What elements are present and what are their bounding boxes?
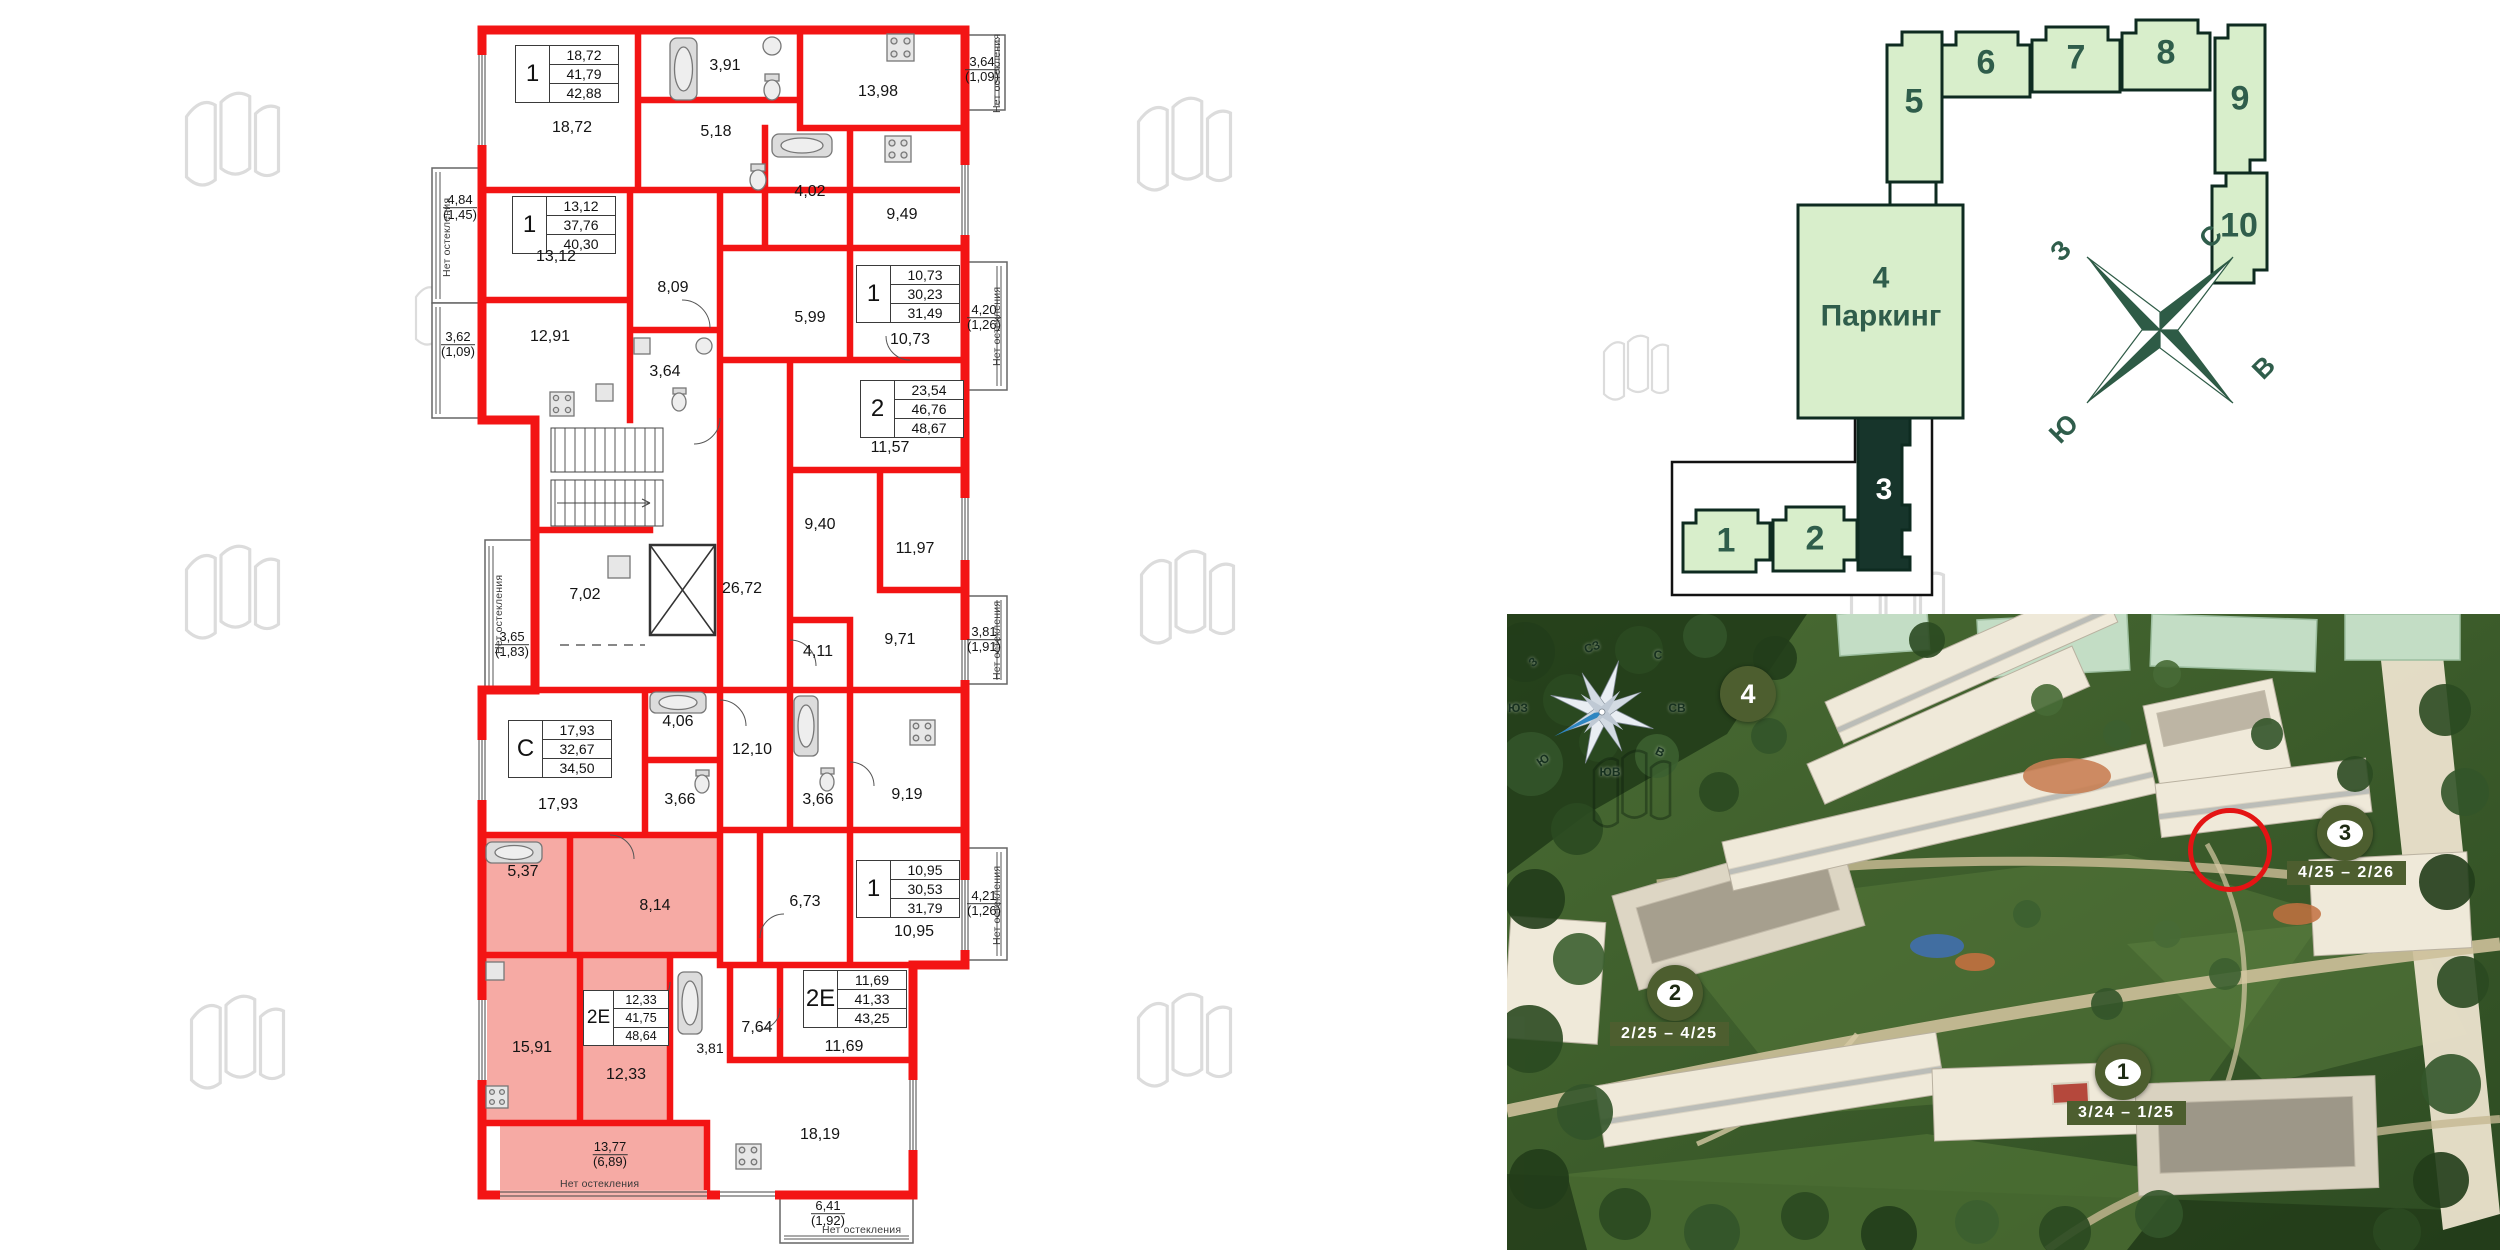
room-area-label: 10,73 bbox=[890, 331, 930, 349]
phase-1-dates: 3/24 – 1/25 bbox=[2067, 1101, 2186, 1125]
apartment-type: 2Е bbox=[804, 971, 838, 1027]
site-building-9[interactable]: 9 bbox=[2231, 80, 2250, 119]
room-area-label: 4,02 bbox=[794, 183, 825, 201]
parking-label[interactable]: Паркинг bbox=[1821, 297, 1942, 336]
toilet-icon bbox=[695, 770, 709, 793]
watermark-logo-icon bbox=[1132, 90, 1237, 205]
watermark-logo-icon bbox=[1132, 986, 1237, 1101]
site-building-6[interactable]: 6 bbox=[1977, 44, 1996, 83]
no-glazing-label: Нет остекления bbox=[822, 1224, 901, 1236]
apartment-card[interactable]: 2 23,5446,7648,67 bbox=[860, 380, 964, 438]
apartment-type: 1 bbox=[516, 46, 550, 102]
parking-number[interactable]: 4 bbox=[1873, 259, 1890, 298]
aerial-compass-n: С bbox=[1654, 648, 1663, 662]
room-area-label: 9,49 bbox=[886, 206, 917, 224]
room-area-label: 7,02 bbox=[569, 586, 600, 604]
site-building-1[interactable]: 1 bbox=[1717, 522, 1736, 561]
balcony-area-label: 3,62(1,09) bbox=[441, 330, 475, 360]
room-area-label: 4,11 bbox=[803, 643, 833, 661]
site-compass-icon bbox=[2087, 257, 2233, 403]
phase-3-dates: 4/25 – 2/26 bbox=[2287, 861, 2406, 885]
room-area-label: 6,73 bbox=[789, 893, 820, 911]
aerial-view: С СЗ З ЮЗ Ю ЮВ В СВ 4 3 2 1 4/25 – 2/26 … bbox=[1507, 614, 2500, 1250]
room-area-label: 18,72 bbox=[552, 119, 592, 137]
apartment-card-selected[interactable]: 2Е 12,3341,7548,64 bbox=[583, 990, 669, 1046]
room-area-label: 13,98 bbox=[858, 83, 898, 101]
room-area-label: 10,95 bbox=[894, 923, 934, 941]
watermark-logo-icon bbox=[180, 85, 285, 200]
phase-2-dates: 2/25 – 4/25 bbox=[1610, 1022, 1729, 1046]
no-glazing-label: Нет остекления bbox=[492, 552, 506, 677]
apartment-type: 1 bbox=[857, 861, 891, 917]
room-area-label: 9,71 bbox=[884, 631, 915, 649]
room-area-label: 3,66 bbox=[664, 791, 695, 809]
room-area-label: 12,33 bbox=[606, 1066, 646, 1084]
room-area-label: 3,81 bbox=[696, 1040, 723, 1056]
selected-building-ring bbox=[2188, 808, 2272, 892]
no-glazing-label: Нет остекления bbox=[440, 170, 454, 305]
watermark-logo-icon bbox=[185, 988, 290, 1103]
sink-icon bbox=[696, 338, 712, 354]
stove-icon bbox=[608, 556, 630, 578]
site-building-7[interactable]: 7 bbox=[2067, 39, 2086, 78]
apartment-card[interactable]: С 17,9332,6734,50 bbox=[508, 720, 612, 778]
room-area-label: 7,64 bbox=[741, 1019, 772, 1037]
site-building-5[interactable]: 5 bbox=[1905, 83, 1924, 122]
room-area-label: 12,91 bbox=[530, 328, 570, 346]
room-area-label: 5,37 bbox=[507, 863, 538, 881]
elevator bbox=[650, 545, 715, 635]
aerial-compass-se: ЮВ bbox=[1599, 765, 1620, 779]
apartment-card[interactable]: 1 10,7330,2331,49 bbox=[856, 265, 960, 323]
no-glazing-label: Нет остекления bbox=[990, 850, 1004, 960]
room-area-label: 11,57 bbox=[871, 439, 910, 457]
no-glazing-label: Нет остекления bbox=[560, 1178, 639, 1190]
room-area-label: 9,40 bbox=[804, 516, 835, 534]
site-plan: 5 6 7 8 9 10 1 2 3 4 Паркинг З С В Ю bbox=[1650, 0, 2500, 600]
room-area-label: 11,97 bbox=[896, 540, 935, 558]
toilet-icon bbox=[750, 164, 766, 190]
site-plan-drawing bbox=[1650, 0, 2500, 600]
apartment-card[interactable]: 1 13,1237,7640,30 bbox=[512, 196, 616, 254]
room-area-label: 11,69 bbox=[825, 1038, 864, 1056]
sink-icon bbox=[763, 37, 781, 55]
floor-plan: 1 18,7241,7942,88 1 13,1237,7640,30 1 10… bbox=[420, 0, 1070, 1250]
no-glazing-label: Нет остекления bbox=[990, 270, 1004, 382]
watermark-logo-icon bbox=[1135, 543, 1240, 658]
washer-icon bbox=[634, 338, 650, 354]
aerial-compass-ne: СВ bbox=[1668, 701, 1685, 715]
room-area-label: 5,18 bbox=[700, 123, 731, 141]
apartment-card[interactable]: 1 10,9530,5331,79 bbox=[856, 860, 960, 918]
room-area-label: 15,91 bbox=[512, 1039, 552, 1057]
room-area-label: 9,19 bbox=[891, 786, 922, 804]
aerial-compass-sw: ЮЗ bbox=[1508, 701, 1528, 715]
room-area-label: 8,14 bbox=[639, 897, 670, 915]
toilet-icon bbox=[820, 768, 834, 791]
aerial-render bbox=[1507, 614, 2500, 1250]
room-area-label: 4,06 bbox=[662, 713, 693, 731]
stove-icon bbox=[887, 34, 914, 61]
apartment-type: 2 bbox=[861, 381, 895, 437]
phase-badge-3[interactable]: 3 bbox=[2317, 805, 2373, 861]
apartment-card[interactable]: 1 18,7241,7942,88 bbox=[515, 45, 619, 103]
apartment-type: 2Е bbox=[584, 991, 614, 1045]
watermark-logo-icon bbox=[1577, 744, 1687, 839]
page: 1 18,7241,7942,88 1 13,1237,7640,30 1 10… bbox=[0, 0, 2500, 1250]
no-glazing-label: Нет остекления bbox=[990, 598, 1004, 682]
room-area-label: 13,12 bbox=[536, 248, 576, 266]
stove-icon bbox=[885, 136, 911, 162]
site-building-8[interactable]: 8 bbox=[2157, 34, 2176, 73]
apartment-type: 1 bbox=[513, 197, 547, 253]
watermark-logo-icon bbox=[180, 538, 285, 653]
stove-icon bbox=[736, 1144, 761, 1169]
room-area-label: 3,64 bbox=[649, 363, 680, 381]
bathtub-icon bbox=[794, 696, 818, 756]
room-area-label: 5,99 bbox=[794, 309, 825, 327]
staircase bbox=[551, 428, 663, 526]
balcony-area-label: 13,77(6,89) bbox=[593, 1140, 628, 1170]
toilet-icon bbox=[764, 74, 780, 100]
room-area-label: 3,66 bbox=[802, 791, 833, 809]
room-area-label: 3,91 bbox=[709, 57, 740, 75]
phase-badge-1[interactable]: 1 bbox=[2095, 1044, 2151, 1100]
stove-icon bbox=[550, 392, 574, 416]
washer-icon bbox=[596, 384, 613, 401]
apartment-type: 1 bbox=[857, 266, 891, 322]
site-building-3-selected[interactable]: 3 bbox=[1876, 473, 1893, 507]
phase-badge-4[interactable]: 4 bbox=[1720, 666, 1776, 722]
room-area-label: 18,19 bbox=[800, 1126, 840, 1144]
bathtub-icon bbox=[772, 134, 832, 157]
site-building-2[interactable]: 2 bbox=[1806, 520, 1825, 559]
room-area-label: 12,10 bbox=[732, 741, 772, 759]
stove-icon bbox=[910, 720, 935, 745]
room-area-label: 17,93 bbox=[538, 796, 578, 814]
bathtub-icon bbox=[650, 692, 706, 713]
toilet-icon bbox=[672, 388, 686, 411]
apartment-type: С bbox=[509, 721, 543, 777]
bathtub-icon bbox=[670, 38, 697, 100]
room-area-label: 8,09 bbox=[657, 279, 688, 297]
apartment-card[interactable]: 2Е 11,6941,3343,25 bbox=[803, 970, 907, 1028]
room-area-label: 26,72 bbox=[722, 580, 762, 598]
phase-badge-2[interactable]: 2 bbox=[1647, 965, 1703, 1021]
no-glazing-label: Нет остекления bbox=[990, 38, 1004, 108]
